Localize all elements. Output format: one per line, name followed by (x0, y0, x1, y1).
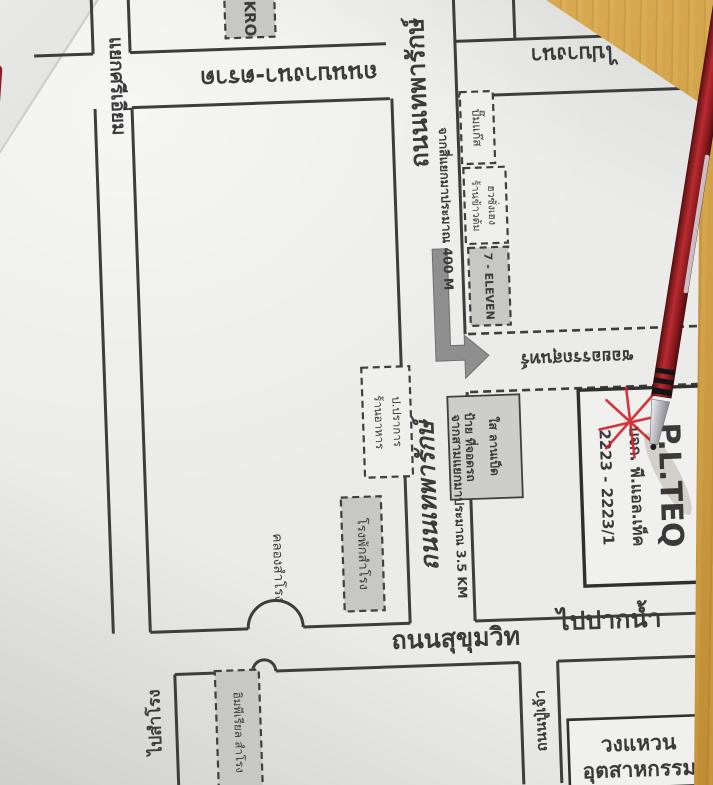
rice-soup-shop-name: ร้านข้าวต้ม (469, 180, 483, 232)
road-puchao-west-edge (520, 662, 524, 784)
imperial-samrong-label: อิมพีเรียล สำโรง (230, 691, 247, 773)
road-thepharak-west-edge (392, 99, 410, 624)
label-thepharak-road-mid: ถนนเทพารักษ์ (410, 414, 444, 571)
label-sukhumvit-road: ถนนสุขุมวิท (391, 621, 521, 656)
map-drawing: KRO ปั๊มแก๊ส ร้านข้าวต้ม ฮวซั่งเฮง 7 - E… (0, 0, 713, 785)
restaurant-name: ร้านอาหาร (371, 395, 387, 450)
gas-station-label: ปั๊มแก๊ส (469, 108, 486, 147)
industrial-ring-line1: วงแหวน (600, 730, 677, 757)
label-samrong-canal: คลองสำโรง (269, 533, 288, 602)
restaurant-box (361, 366, 413, 478)
seven-eleven-label: 7 - ELEVEN (481, 253, 496, 321)
rice-soup-shop-subname: ฮวซั่งเฮง (485, 185, 500, 225)
label-to-paknam: ไปปากน้ำ (553, 598, 662, 636)
parking-sign-line2: ใส ลานเป็ด (486, 416, 503, 476)
canal-bridge-arc-large (247, 600, 303, 629)
photo-stage: KRO ปั๊มแก๊ส ร้านข้าวต้ม ฮวซั่งเฮง 7 - E… (0, 0, 713, 785)
map-content: KRO ปั๊มแก๊ส ร้านข้าวต้ม ฮวซั่งเฮง 7 - E… (0, 0, 713, 785)
label-to-samrong: ไปสำโรง (143, 689, 166, 758)
red-edge-mark (0, 64, 3, 107)
destination-name-en: P.L.TEQ (650, 422, 689, 548)
paper-sheet: KRO ปั๊มแก๊ส ร้านข้าวต้ม ฮวซั่งเฮง 7 - E… (0, 0, 713, 785)
road-thepharak-upper-jog-edge (513, 0, 515, 39)
label-soi-entrance: ซอยอรรถสุนทร์ (519, 345, 633, 370)
label-puchao-road: ถนนปู่เจ้า (531, 690, 552, 752)
police-station-label: โรงพักสำโรง (353, 517, 372, 590)
label-to-bangna: ไปบางนา (530, 41, 618, 69)
restaurant-subname: ป.ปราการ (389, 396, 405, 447)
label-thepharak-road-top: ถนนเทพารักษ์ (400, 17, 434, 168)
makro-label: KRO (240, 0, 259, 37)
road-puchao-east-edge (558, 661, 562, 783)
road-srinakarin-east-edge (128, 0, 179, 785)
soi-north-edge-dashed (468, 326, 711, 334)
label-bangna-trat-road: ถนนบางนา-ตราด (200, 59, 378, 91)
